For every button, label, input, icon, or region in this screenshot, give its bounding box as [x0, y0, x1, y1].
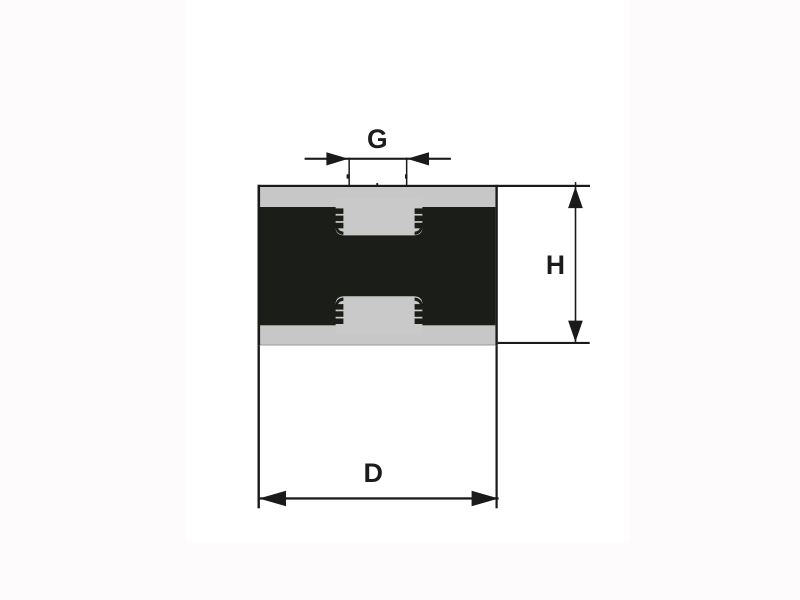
svg-text:G: G — [367, 124, 388, 154]
svg-text:H: H — [546, 250, 565, 280]
svg-text:D: D — [364, 458, 384, 488]
